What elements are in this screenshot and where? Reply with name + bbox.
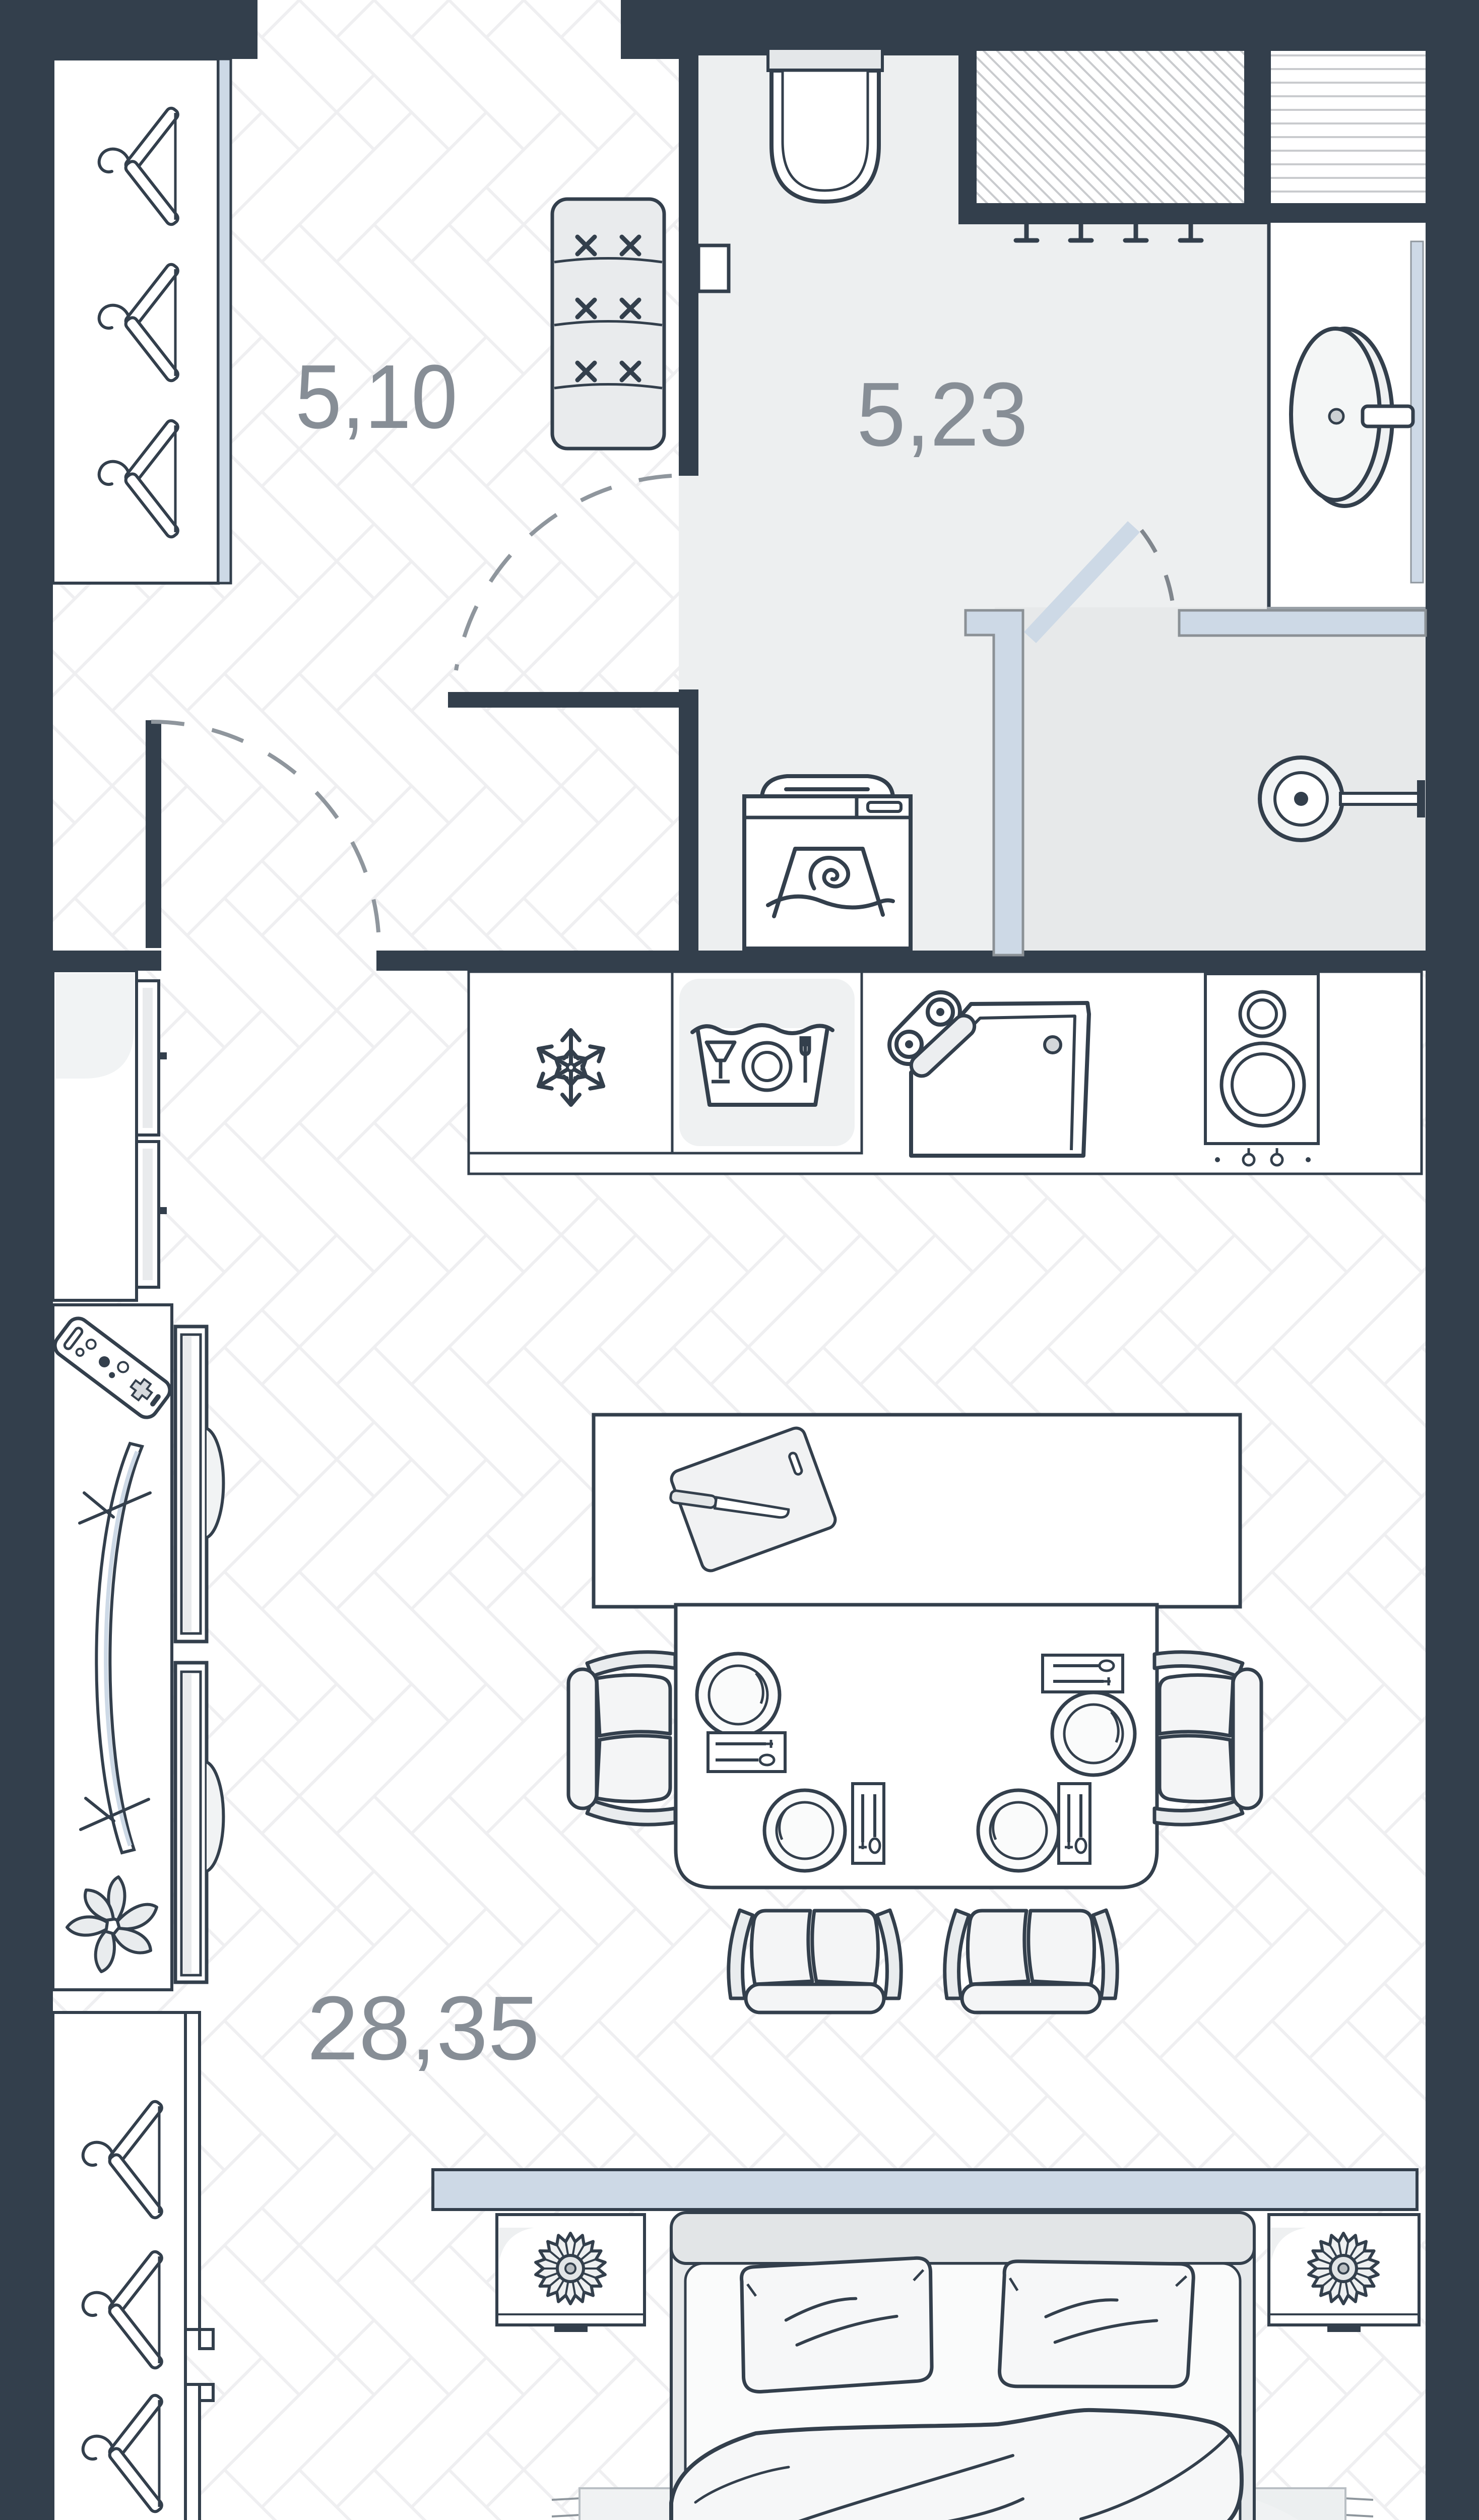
svg-text:5,23: 5,23 <box>857 364 1028 465</box>
svg-text:28,35: 28,35 <box>307 1978 540 2079</box>
svg-text:5,10: 5,10 <box>295 346 458 448</box>
